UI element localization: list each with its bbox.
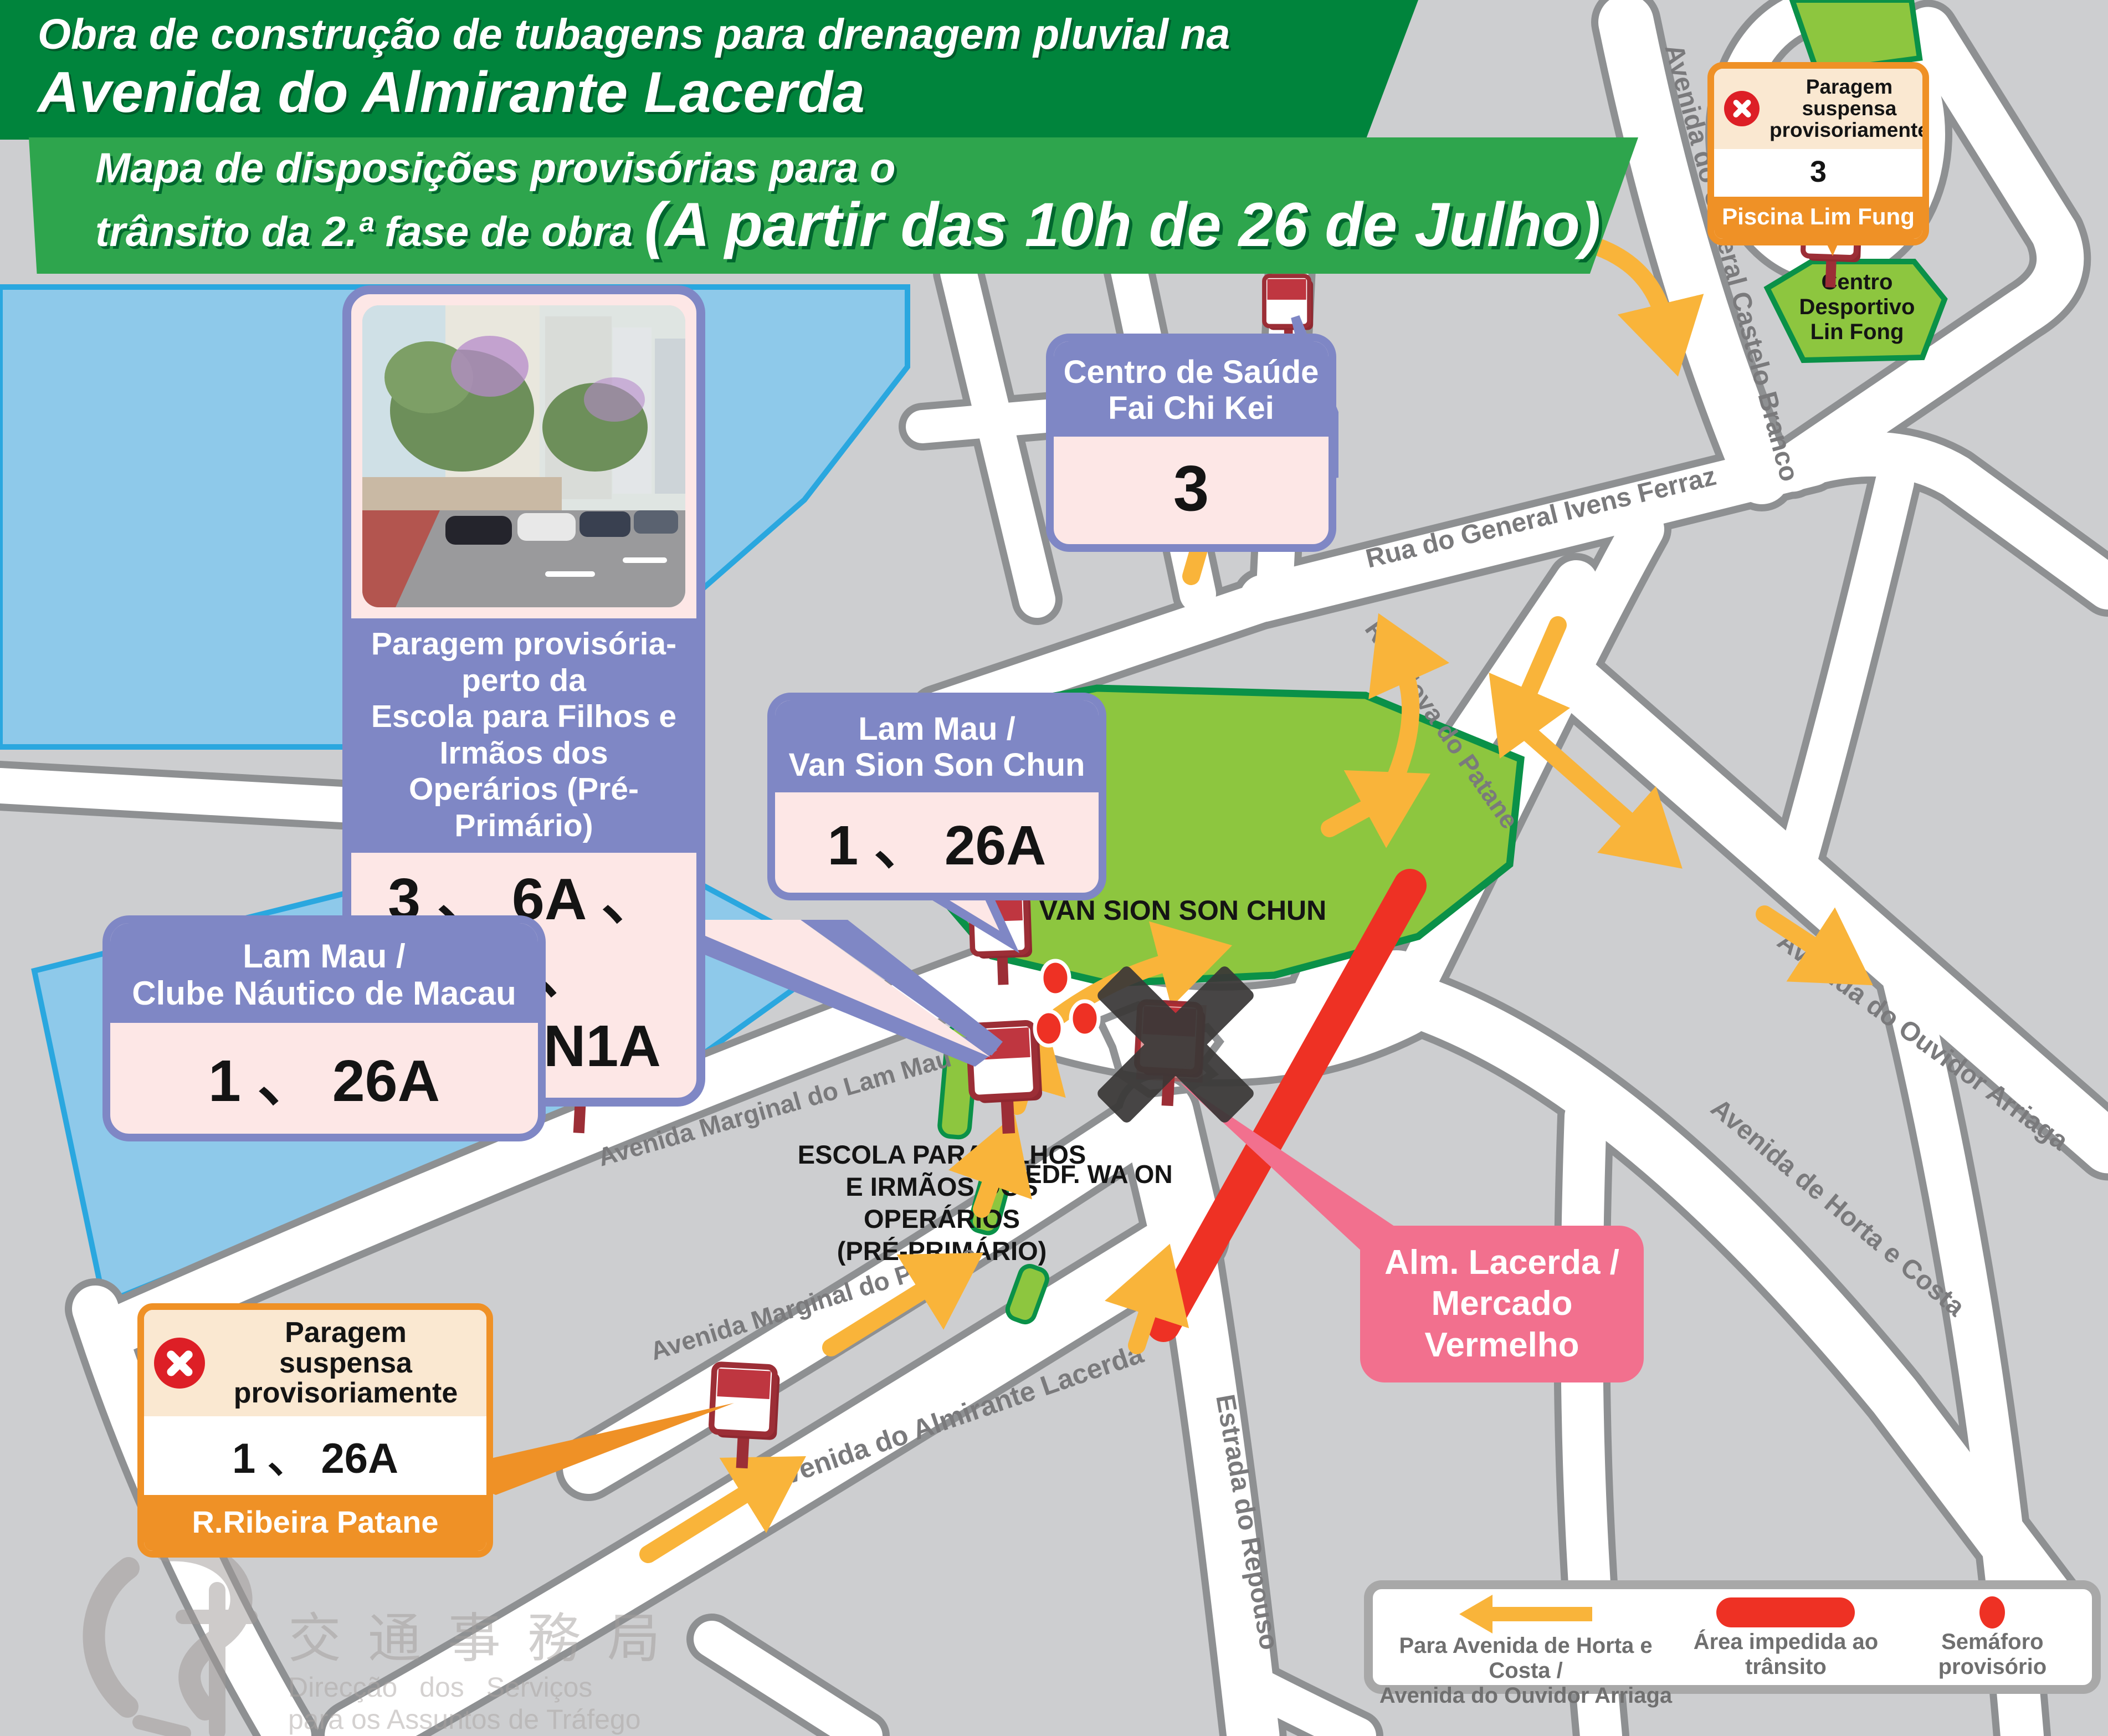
piscina-suspended-line1: Paragem suspensa — [1770, 76, 1929, 120]
piscina-grounds — [1792, 0, 1920, 72]
saude-routes: 3 — [1054, 437, 1329, 544]
header-line3: Mapa de disposições provisórias para o — [95, 137, 1638, 190]
dsat-pt-line2: para os Assuntos de Tráfego — [288, 1704, 641, 1735]
legend-arrow-text: Para Avenida de Horta e Costa / Avenida … — [1376, 1633, 1675, 1708]
stop-photo — [362, 305, 685, 607]
saude-title-line2: Fai Chi Kei — [1058, 391, 1324, 427]
saude-title-line1: Centro de Saúde — [1058, 355, 1324, 391]
van-sion-routes: 1 、 26A — [775, 792, 1099, 893]
header-line1: Obra de construção de tubagens para dren… — [38, 0, 1418, 56]
legend-blocked-icon — [1716, 1597, 1855, 1627]
piscina-suspended-line2: provisoriamente — [1770, 120, 1929, 141]
lin-fong-line3: Lin Fong — [1810, 320, 1904, 344]
no-stop-icon — [1724, 91, 1760, 126]
legend-blocked-line1: Área impedida ao — [1694, 1630, 1878, 1655]
header-banner-title: Obra de construção de tubagens para dren… — [0, 0, 1418, 140]
legend-arrow-line2: Avenida do Ouvidor Arriaga — [1376, 1683, 1675, 1708]
header-line4-emphasis: (A partir das 10h de 26 de Julho) — [644, 194, 1601, 256]
header-line4: trânsito da 2.ª fase de obra (A partir d… — [95, 190, 1638, 256]
clube-title: Lam Mau / Clube Náutico de Macau — [110, 923, 538, 1023]
header-banner-subtitle: Mapa de disposições provisórias para o t… — [29, 137, 1638, 274]
legend-signal-line2: provisório — [1938, 1655, 2047, 1679]
mercado-line2: Mercado Vermelho — [1366, 1283, 1638, 1366]
ribeira-suspended-line1: Paragem suspensa — [215, 1318, 476, 1378]
photo-caption: Paragem provisória-perto da Escola para … — [351, 618, 696, 853]
legend-item-blocked: Área impedida ao trânsito — [1675, 1595, 1896, 1679]
callout-piscina-suspended: Paragem suspensa provisoriamente 3 Pisci… — [1707, 62, 1929, 245]
legend: Para Avenida de Horta e Costa / Avenida … — [1364, 1580, 2101, 1694]
piscina-stop-name: Piscina Lim Fung — [1714, 197, 1922, 239]
piscina-suspended-text: Paragem suspensa provisoriamente — [1770, 76, 1929, 141]
traffic-map-poster: { "header": { "line1": "Obra de construç… — [0, 0, 2108, 1736]
van-sion-title: Lam Mau / Van Sion Son Chun — [775, 700, 1099, 792]
ribeira-suspended-text: Paragem suspensa provisoriamente — [215, 1318, 476, 1409]
legend-arrow-icon — [1459, 1595, 1592, 1633]
legend-item-direction: Para Avenida de Horta e Costa / Avenida … — [1376, 1595, 1675, 1679]
legend-signal-text: Semáforo provisório — [1938, 1630, 2047, 1679]
signal-dot — [1071, 1001, 1099, 1036]
legend-blocked-text: Área impedida ao trânsito — [1694, 1630, 1878, 1679]
saude-title: Centro de Saúde Fai Chi Kei — [1054, 341, 1329, 437]
clube-title-line1: Lam Mau / — [116, 938, 532, 975]
street-photo-illustration — [362, 305, 685, 607]
legend-signal-line1: Semáforo — [1938, 1630, 2047, 1655]
photo-caption-line1: Paragem provisória-perto da — [353, 626, 694, 699]
callout-mercado-vermelho: Alm. Lacerda / Mercado Vermelho — [1360, 1226, 1644, 1382]
legend-arrow-line1: Para Avenida de Horta e Costa / — [1376, 1633, 1675, 1683]
legend-blocked-line2: trânsito — [1694, 1655, 1878, 1679]
signal-dot — [1042, 961, 1069, 995]
ribeira-stop-name: R.Ribeira Patane — [144, 1495, 486, 1551]
callout-clube-nautico: Lam Mau / Clube Náutico de Macau 1 、 26A — [102, 915, 546, 1141]
no-stop-icon — [154, 1338, 205, 1389]
callout-centro-saude: Centro de Saúde Fai Chi Kei 3 — [1046, 334, 1336, 552]
dsat-pt-line1: Direcção dos Serviços — [288, 1672, 592, 1703]
signal-dot — [1035, 1011, 1063, 1046]
van-sion-title-line1: Lam Mau / — [783, 711, 1091, 747]
clube-routes: 1 、 26A — [110, 1023, 538, 1134]
ribeira-suspended-line2: provisoriamente — [215, 1378, 476, 1409]
ribeira-routes: 1 、 26A — [144, 1416, 486, 1495]
escola-line2: E IRMÃOS DOS — [845, 1172, 1038, 1201]
legend-item-signal: Semáforo provisório — [1896, 1595, 2089, 1679]
piscina-routes: 3 — [1714, 149, 1922, 197]
legend-signal-icon — [1979, 1596, 2005, 1629]
header-line4-prefix: trânsito da 2.ª fase de obra — [95, 211, 644, 253]
ribeira-suspended-band: Paragem suspensa provisoriamente — [144, 1310, 486, 1416]
escola-line1: ESCOLA PARA FILHOS — [798, 1140, 1086, 1169]
escola-line3: OPERÁRIOS — [864, 1204, 1020, 1233]
van-sion-title-line2: Van Sion Son Chun — [783, 747, 1091, 783]
lin-fong-line2: Desportivo — [1799, 295, 1915, 319]
header-line2: Avenida do Almirante Lacerda — [38, 56, 1418, 121]
photo-caption-line3: Operários (Pré-Primário) — [353, 771, 694, 844]
photo-caption-line2: Escola para Filhos e Irmãos dos — [353, 699, 694, 771]
clube-title-line2: Clube Náutico de Macau — [116, 975, 532, 1012]
callout-ribeira-suspended: Paragem suspensa provisoriamente 1 、 26A… — [137, 1303, 493, 1558]
piscina-suspended-band: Paragem suspensa provisoriamente — [1714, 69, 1922, 149]
callout-van-sion: Lam Mau / Van Sion Son Chun 1 、 26A — [767, 693, 1106, 900]
dsat-cjk-name: 交通事務局 — [288, 1609, 687, 1668]
mercado-line1: Alm. Lacerda / — [1366, 1242, 1638, 1283]
